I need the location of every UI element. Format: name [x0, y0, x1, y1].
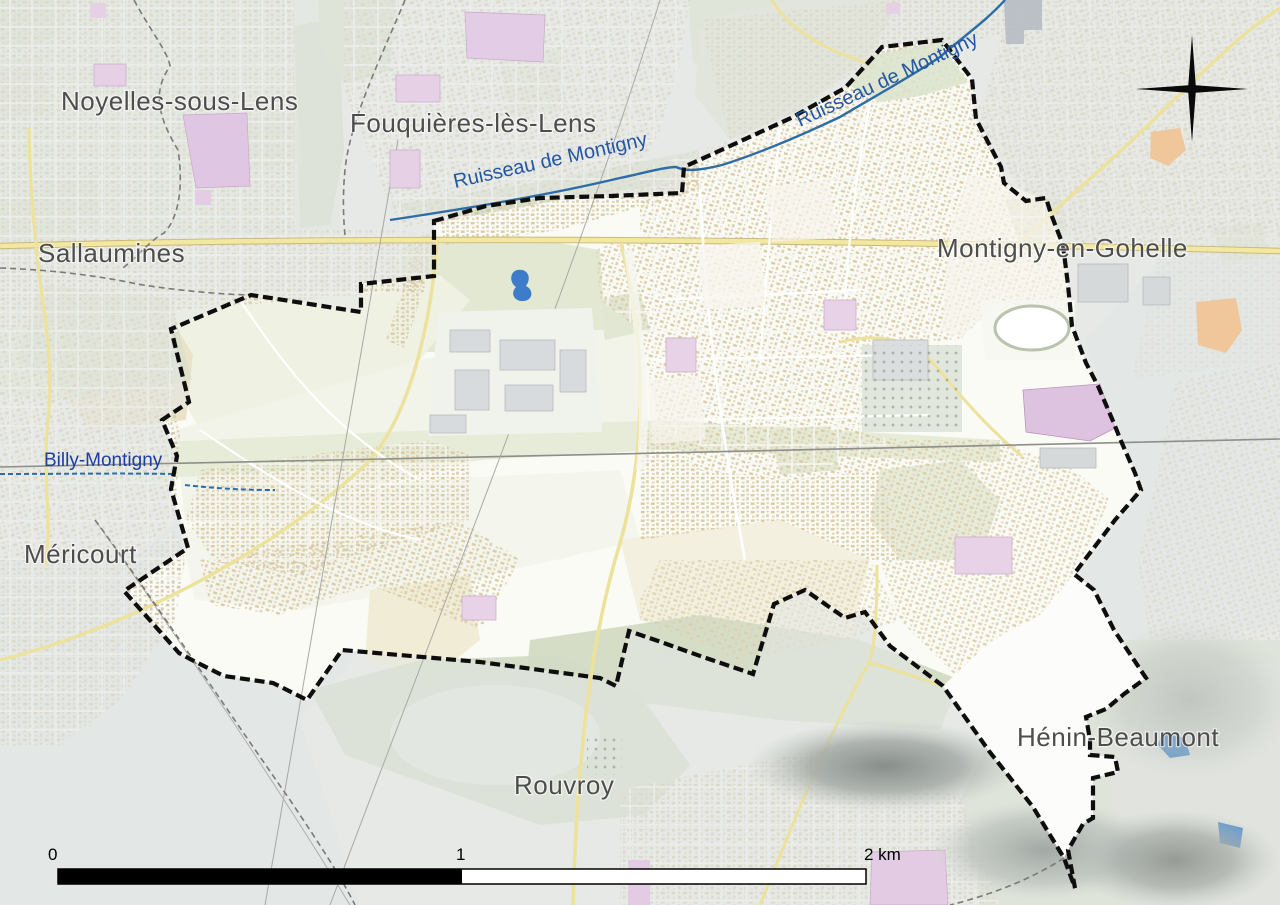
svg-text:Sallaumines: Sallaumines	[38, 238, 185, 268]
svg-text:Billy-Montigny: Billy-Montigny	[44, 450, 163, 471]
svg-text:Rouvroy: Rouvroy	[514, 770, 614, 800]
svg-text:Montigny-en-Gohelle: Montigny-en-Gohelle	[937, 233, 1188, 263]
svg-text:0: 0	[48, 845, 57, 864]
svg-text:1: 1	[456, 845, 465, 864]
svg-text:Fouquières-lès-Lens: Fouquières-lès-Lens	[350, 108, 597, 138]
svg-text:Méricourt: Méricourt	[24, 539, 137, 569]
svg-text:2 km: 2 km	[864, 845, 901, 864]
svg-text:Hénin-Beaumont: Hénin-Beaumont	[1017, 722, 1219, 752]
svg-text:Noyelles-sous-Lens: Noyelles-sous-Lens	[61, 86, 298, 116]
